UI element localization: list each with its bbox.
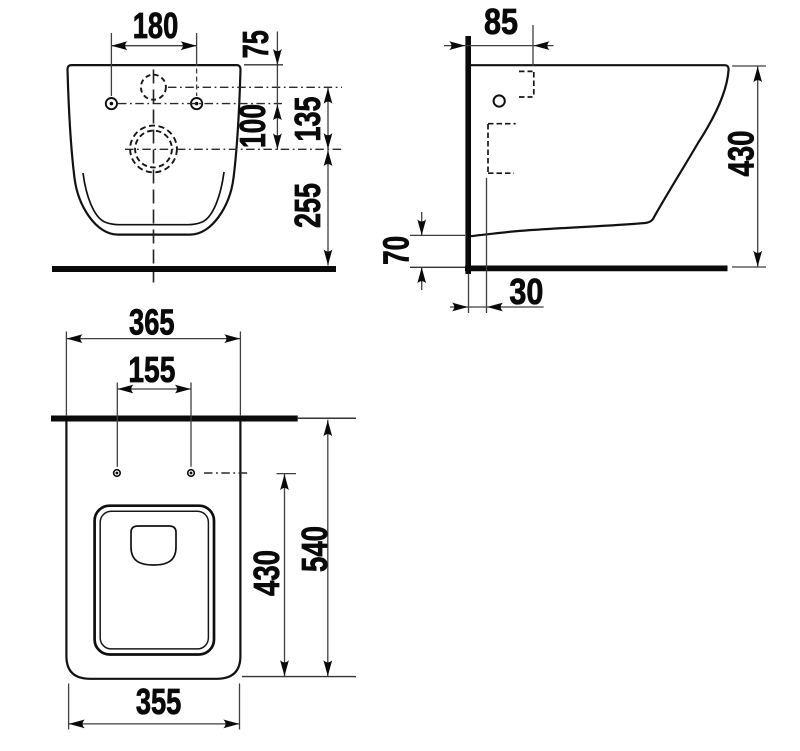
svg-text:365: 365 <box>129 302 175 343</box>
svg-text:75: 75 <box>235 30 276 58</box>
svg-text:255: 255 <box>287 183 328 228</box>
svg-text:355: 355 <box>136 681 182 722</box>
svg-text:180: 180 <box>133 5 179 46</box>
svg-text:85: 85 <box>484 1 518 42</box>
svg-text:430: 430 <box>246 550 287 596</box>
svg-text:30: 30 <box>509 271 543 312</box>
svg-text:430: 430 <box>721 131 762 177</box>
svg-text:135: 135 <box>287 97 328 142</box>
svg-text:100: 100 <box>232 104 273 148</box>
svg-text:70: 70 <box>376 236 417 265</box>
svg-text:540: 540 <box>294 526 335 572</box>
svg-text:155: 155 <box>128 349 175 390</box>
